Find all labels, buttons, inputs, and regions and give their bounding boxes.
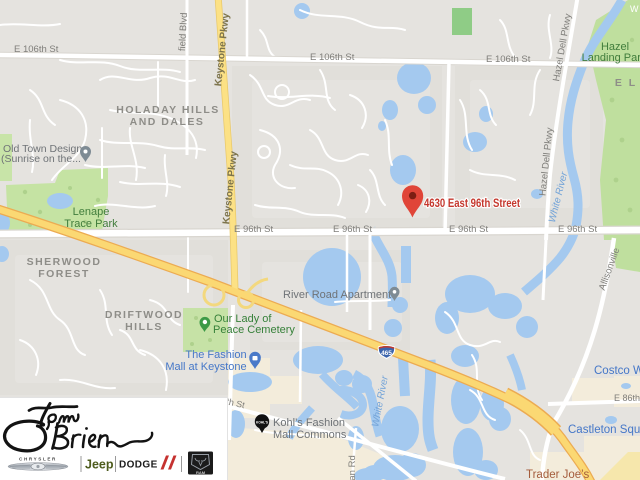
svg-text:Dean Rd: Dean Rd [347, 455, 358, 480]
svg-text:Lenape: Lenape [73, 206, 110, 218]
svg-text:field Blvd: field Blvd [177, 12, 190, 51]
svg-text:(Sunrise on the...: (Sunrise on the... [1, 153, 81, 165]
svg-text:E 106th St: E 106th St [486, 54, 531, 65]
svg-text:Jeep: Jeep [85, 458, 114, 472]
svg-text:E 96th St: E 96th St [449, 224, 488, 235]
svg-text:E 106th St: E 106th St [14, 44, 59, 55]
svg-text:River Road Apartments: River Road Apartments [283, 289, 397, 301]
svg-text:Trader Joe’s: Trader Joe’s [526, 469, 590, 480]
svg-text:E 96th St: E 96th St [558, 224, 597, 235]
svg-text:CHRYSLER: CHRYSLER [19, 457, 57, 462]
svg-text:E 106th St: E 106th St [310, 52, 355, 63]
svg-text:Trace Park: Trace Park [64, 218, 118, 230]
svg-text:Landing Park: Landing Park [582, 52, 640, 64]
svg-text:The Fashion: The Fashion [185, 349, 246, 361]
svg-text:HILLS: HILLS [125, 321, 163, 333]
svg-text:FOREST: FOREST [38, 268, 90, 280]
svg-text:E 96th St: E 96th St [333, 224, 372, 235]
svg-text:Peace Cemetery: Peace Cemetery [213, 324, 295, 336]
svg-text:W: W [630, 4, 639, 14]
svg-text:4630 East 96th Street: 4630 East 96th Street [424, 196, 520, 210]
svg-text:KOHL'S: KOHL'S [256, 420, 268, 424]
svg-text:E L: E L [615, 77, 637, 89]
svg-text:Kohl’s Fashion: Kohl’s Fashion [273, 417, 345, 429]
svg-text:E 86th: E 86th [614, 393, 640, 403]
svg-text:Costco Wh: Costco Wh [594, 365, 640, 377]
svg-text:SHERWOOD: SHERWOOD [27, 256, 102, 268]
svg-text:DODGE: DODGE [119, 460, 158, 471]
svg-text:Castleton Squa: Castleton Squa [568, 424, 640, 436]
svg-text:RAM: RAM [196, 470, 206, 475]
svg-text:AND DALES: AND DALES [130, 116, 205, 128]
svg-text:Mall at Keystone: Mall at Keystone [165, 361, 246, 373]
svg-text:DRIFTWOOD: DRIFTWOOD [105, 309, 183, 321]
svg-text:E 96th St: E 96th St [234, 224, 273, 235]
svg-text:HOLADAY HILLS: HOLADAY HILLS [116, 104, 220, 116]
svg-text:465: 465 [381, 350, 392, 357]
svg-text:Mall Commons: Mall Commons [273, 429, 347, 441]
